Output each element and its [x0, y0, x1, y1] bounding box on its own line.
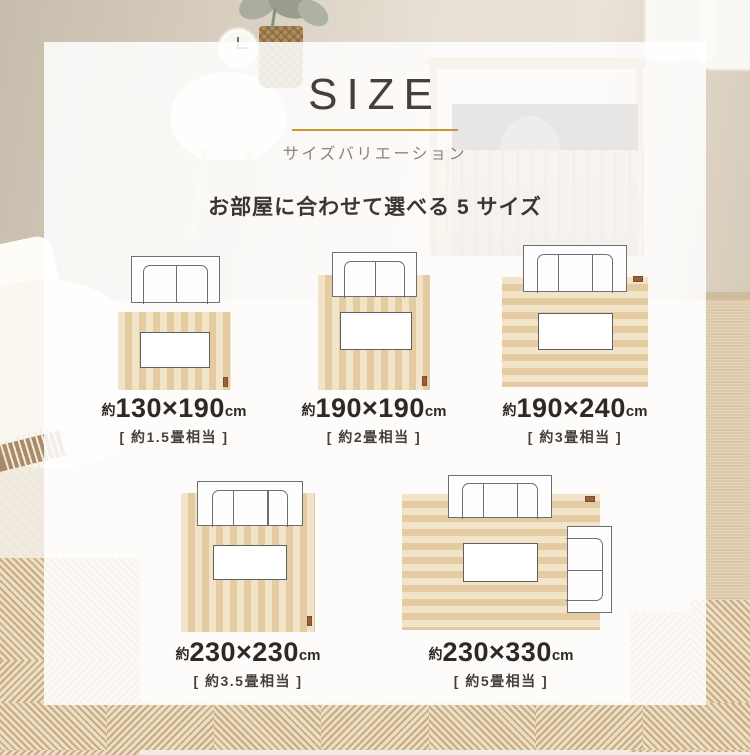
size-label-3: 約190×240cm [ 約3畳相当 ] — [475, 393, 675, 447]
rug-tag-icon — [585, 496, 595, 502]
size-label-4: 約230×230cm [ 約3.5畳相当 ] — [148, 637, 348, 691]
page-subtitle: サイズバリエーション — [0, 140, 750, 164]
sofa-rotated-wrapper — [567, 526, 612, 613]
size-label-5: 約230×330cm [ 約5畳相当 ] — [401, 637, 601, 691]
carpet-chevron-block — [107, 703, 214, 750]
carpet-chevron-block — [0, 703, 107, 750]
size-dimensions: 約190×240cm — [475, 393, 675, 424]
sofa-seat — [212, 490, 289, 527]
sofa-cushion-divider — [267, 490, 268, 525]
low-table-icon — [538, 313, 613, 350]
sofa-cushion-divider — [375, 261, 376, 296]
carpet-chevron-block — [643, 703, 750, 750]
sofa-icon — [567, 526, 612, 613]
lead-text: お部屋に合わせて選べる 5 サイズ — [0, 191, 750, 221]
carpet-bottom-strip — [0, 703, 750, 750]
sofa-icon — [523, 245, 627, 292]
sofa-cushion-divider — [558, 254, 559, 291]
carpet-chevron-block — [536, 703, 643, 750]
size-dimensions: 約130×190cm — [74, 393, 274, 424]
rug-tag-icon — [422, 376, 427, 386]
sofa-cushion-divider — [233, 490, 234, 525]
wall-skirting — [700, 292, 750, 300]
sofa-seat — [537, 254, 613, 292]
sofa-cushion-divider — [568, 570, 603, 571]
sofa-icon — [131, 256, 220, 303]
carpet-chevron-block — [214, 703, 321, 750]
size-dimensions: 約230×330cm — [401, 637, 601, 668]
rug-tag-icon — [307, 616, 312, 626]
size-dimensions: 約230×230cm — [148, 637, 348, 668]
carpet-chevron-block — [429, 703, 536, 750]
sofa-seat — [462, 483, 538, 518]
size-dimensions: 約190×190cm — [274, 393, 474, 424]
size-label-1: 約130×190cm [ 約1.5畳相当 ] — [74, 393, 274, 447]
low-table-icon — [213, 545, 287, 580]
rug-tag-icon — [633, 276, 643, 282]
sofa-cushion-divider — [483, 483, 484, 517]
sofa-cushion-divider — [176, 265, 177, 302]
sofa-icon — [332, 252, 417, 297]
low-table-icon — [140, 332, 210, 368]
curtain — [700, 0, 750, 70]
tatami-equivalent: [ 約2畳相当 ] — [274, 427, 474, 447]
tatami-equivalent: [ 約3.5畳相当 ] — [148, 671, 348, 691]
carpet-chevron-block — [321, 703, 428, 750]
low-table-icon — [463, 543, 538, 582]
title-divider — [292, 129, 458, 131]
sofa-icon — [197, 481, 303, 526]
sofa-cushion-divider — [592, 254, 593, 291]
size-label-2: 約190×190cm [ 約2畳相当 ] — [274, 393, 474, 447]
rug-tag-icon — [223, 377, 228, 387]
sofa-cushion-divider — [517, 483, 518, 517]
page-title: SIZE — [0, 70, 750, 120]
tatami-equivalent: [ 約1.5畳相当 ] — [74, 427, 274, 447]
low-table-icon — [340, 312, 412, 350]
tatami-equivalent: [ 約5畳相当 ] — [401, 671, 601, 691]
sofa-icon — [448, 475, 552, 518]
tatami-equivalent: [ 約3畳相当 ] — [475, 427, 675, 447]
